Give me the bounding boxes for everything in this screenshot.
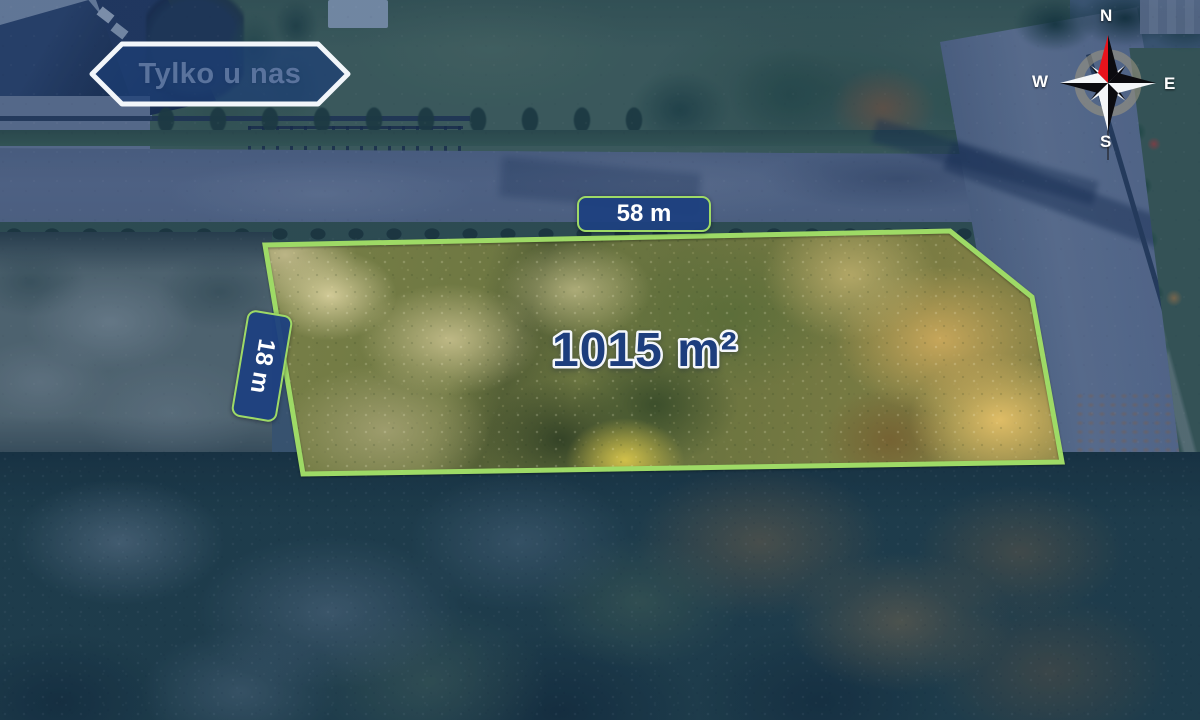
compass-east-label: E [1164,74,1175,94]
exclusive-badge: Tylko u nas [88,38,352,110]
compass-west-label: W [1032,72,1048,92]
aerial-plot-photo: Tylko u nas 58 m 18 m 1015 m² [0,0,1200,720]
frontage-dimension-text: 58 m [617,200,672,228]
depth-dimension-text: 18 m [244,337,281,396]
compass-rose: N W E S [1028,4,1188,166]
plot-area-label: 1015 m² [542,314,792,386]
compass-south-label: S [1100,132,1111,152]
badge-hexagon [88,38,352,110]
plot-area-text: 1015 m² [552,324,738,377]
frontage-dimension-label: 58 m [577,196,711,232]
compass-north-label: N [1100,6,1112,26]
